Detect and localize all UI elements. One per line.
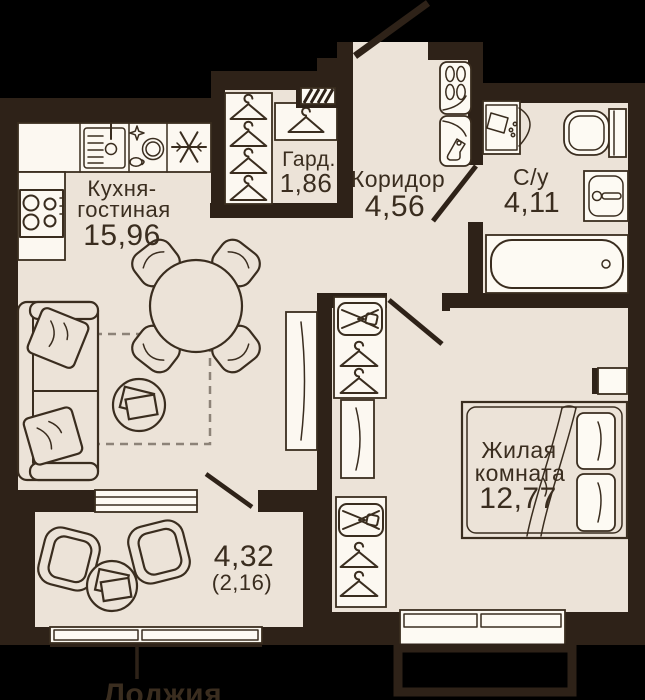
kitchen-area: 15,96: [83, 219, 161, 252]
dining-table: [150, 260, 242, 352]
bathroom-sink-icon: [584, 171, 628, 221]
wardrobe-area: 1,86: [280, 168, 333, 198]
corridor-label: Коридор: [351, 166, 445, 192]
bathroom-area: 4,11: [504, 187, 560, 219]
vent-shaft-icon: [296, 84, 340, 108]
balcony-door-gap: [197, 490, 258, 512]
loggia-area: 4,32: [214, 540, 274, 573]
pillow: [577, 413, 615, 469]
entry-hall-storage: [440, 62, 471, 166]
bedroom-window: [400, 610, 565, 645]
bedroom-closet: [336, 497, 386, 607]
loggia-callout-label: Лоджия: [104, 678, 222, 700]
loggia-table: [87, 561, 137, 611]
bathtub-icon: [486, 235, 628, 293]
boot-cabinet-icon: [440, 116, 471, 166]
loggia-inner-window: [95, 490, 197, 512]
pillow: [577, 474, 615, 531]
corridor-area: 4,56: [365, 190, 425, 223]
loggia-glazing: [50, 627, 262, 643]
corridor-passage-floor: [317, 218, 353, 293]
floor-plan-canvas: Кухня- гостиная 15,96 Гард. 1,86 Коридор…: [0, 0, 645, 700]
bedroom-area: 12,77: [479, 482, 557, 515]
floor-plan: Кухня- гостиная 15,96 Гард. 1,86 Коридор…: [0, 0, 645, 700]
nightstand: [598, 368, 627, 394]
toilet-icon: [564, 109, 626, 157]
tv-cabinet: [286, 312, 317, 450]
facade-outline: [398, 648, 572, 692]
shoe-cabinet-icon: [440, 62, 471, 114]
mirror-cabinet: [341, 400, 374, 478]
bedroom-closet: [334, 297, 386, 398]
sofa: [18, 302, 98, 480]
coffee-table: [113, 379, 165, 431]
loggia-area-coefficient: (2,16): [212, 570, 272, 595]
